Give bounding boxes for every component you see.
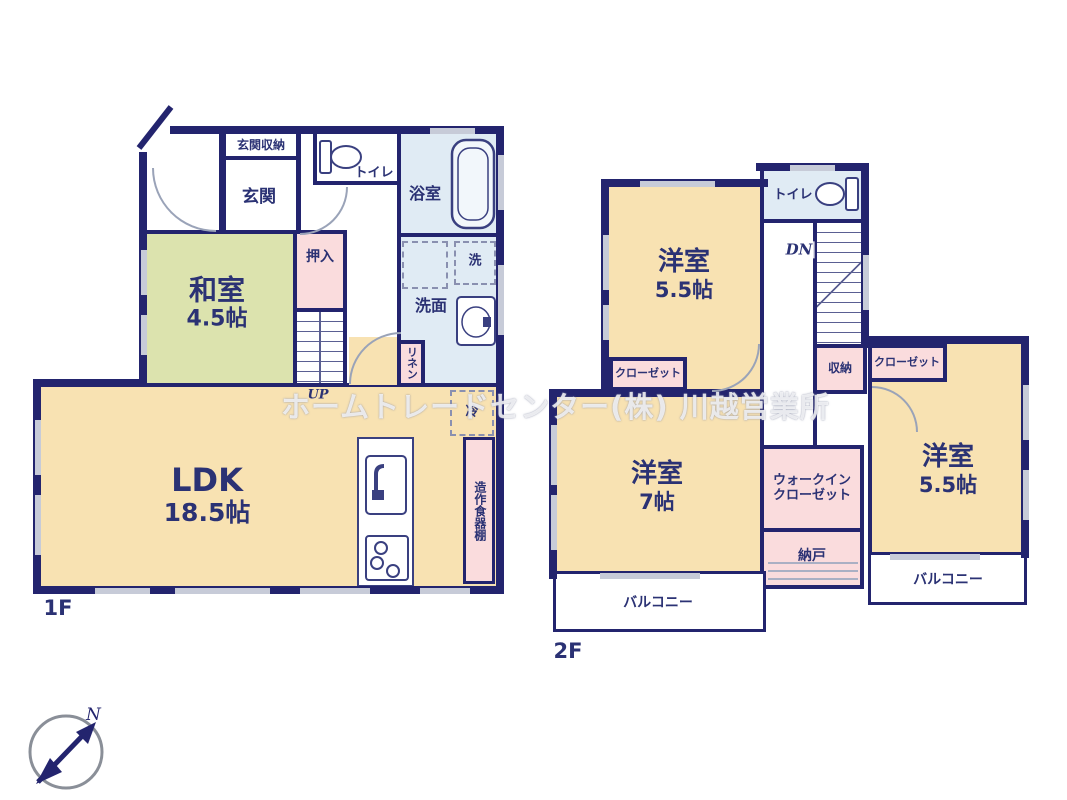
room-label: リネン (405, 347, 418, 380)
window-marker (551, 495, 557, 550)
room-label: トイレ (354, 167, 393, 182)
window-marker (1023, 385, 1029, 440)
stove-icon (363, 533, 411, 583)
window-marker (600, 573, 700, 579)
window-marker (35, 495, 41, 555)
window-marker (95, 588, 150, 594)
north-arrow-icon (36, 722, 96, 784)
wall-segment (864, 336, 1029, 344)
room-label: バルコニー (913, 572, 983, 588)
bathtub-icon (450, 138, 496, 230)
room-label: 洋室 5.5帖 (919, 443, 977, 497)
room-label: 押入 (306, 249, 334, 265)
wall-segment (1021, 336, 1029, 558)
room-label: 収納 (828, 362, 852, 376)
room-oshiire (293, 230, 347, 312)
window-marker (551, 425, 557, 485)
room-label: クローゼット (615, 368, 681, 381)
window-marker (1023, 470, 1029, 520)
room-size: 5.5帖 (919, 473, 977, 497)
sink-icon (455, 295, 497, 347)
kitchen-sink-icon (362, 452, 410, 518)
room-label: 浴室 (409, 185, 441, 203)
wall-segment (33, 379, 41, 594)
stairs-label: DN (784, 241, 815, 258)
room-name-line1: ウォークイン (773, 474, 851, 489)
room-label: 和室 4.5帖 (187, 274, 248, 331)
room-label: 洋室 5.5帖 (655, 248, 713, 302)
window-marker (420, 588, 470, 594)
room-label: トイレ (773, 189, 812, 204)
room-size: 7帖 (631, 490, 683, 514)
floor-plan-canvas: 玄関収納 玄関 トイレ 浴室 和室 4.5帖 押入 UP 洗 洗面 リネン 冷 … (0, 0, 1067, 800)
window-marker (175, 588, 270, 594)
watermark: ホームトレードセンター(株) 川越営業所 (281, 384, 830, 426)
room-size: 18.5帖 (164, 499, 251, 528)
room-name: LDK (164, 462, 251, 499)
room-name: 洋室 (655, 248, 713, 278)
room-label: LDK 18.5帖 (164, 462, 251, 528)
window-marker (603, 235, 609, 290)
floor1-label: 1F (44, 596, 73, 620)
window-marker (603, 305, 609, 340)
stairs-down-2f (813, 219, 867, 348)
window-marker (498, 265, 504, 335)
room-label: 洗 (468, 255, 481, 270)
window-marker (35, 420, 41, 475)
room-name: 洋室 (631, 460, 683, 490)
window-marker (498, 155, 504, 210)
room-label: 洗面 (415, 297, 447, 315)
window-marker (141, 250, 147, 295)
room-label: 納戸 (798, 548, 826, 564)
room-size: 5.5帖 (655, 278, 713, 302)
room-label: クローゼット (874, 357, 940, 370)
room-size: 4.5帖 (187, 306, 248, 331)
wall-segment (33, 379, 145, 387)
toilet-icon (812, 172, 862, 216)
room-label: 玄関収納 (237, 139, 285, 153)
room-label: 造作食器棚 (472, 481, 486, 541)
room-label: バルコニー (623, 595, 693, 611)
window-marker (300, 588, 370, 594)
window-marker (790, 165, 835, 171)
room-name-line2: クローゼット (773, 489, 851, 504)
washer-space (402, 241, 448, 289)
compass-north-label: N (85, 705, 102, 725)
window-marker (430, 128, 475, 134)
room-label: 洋室 7帖 (631, 460, 683, 514)
room-label: 玄関 (242, 188, 276, 208)
window-marker (863, 255, 869, 310)
stairs-up-1f (293, 308, 347, 390)
window-marker (890, 554, 980, 560)
floor2-label: 2F (554, 639, 583, 663)
room-name: 洋室 (919, 443, 977, 473)
compass-icon: N (18, 698, 118, 798)
window-marker (640, 181, 715, 187)
window-marker (141, 315, 147, 355)
room-name: 和室 (187, 274, 248, 306)
sliding-door-marker (768, 562, 858, 580)
room-label: ウォークイン クローゼット (773, 474, 851, 504)
